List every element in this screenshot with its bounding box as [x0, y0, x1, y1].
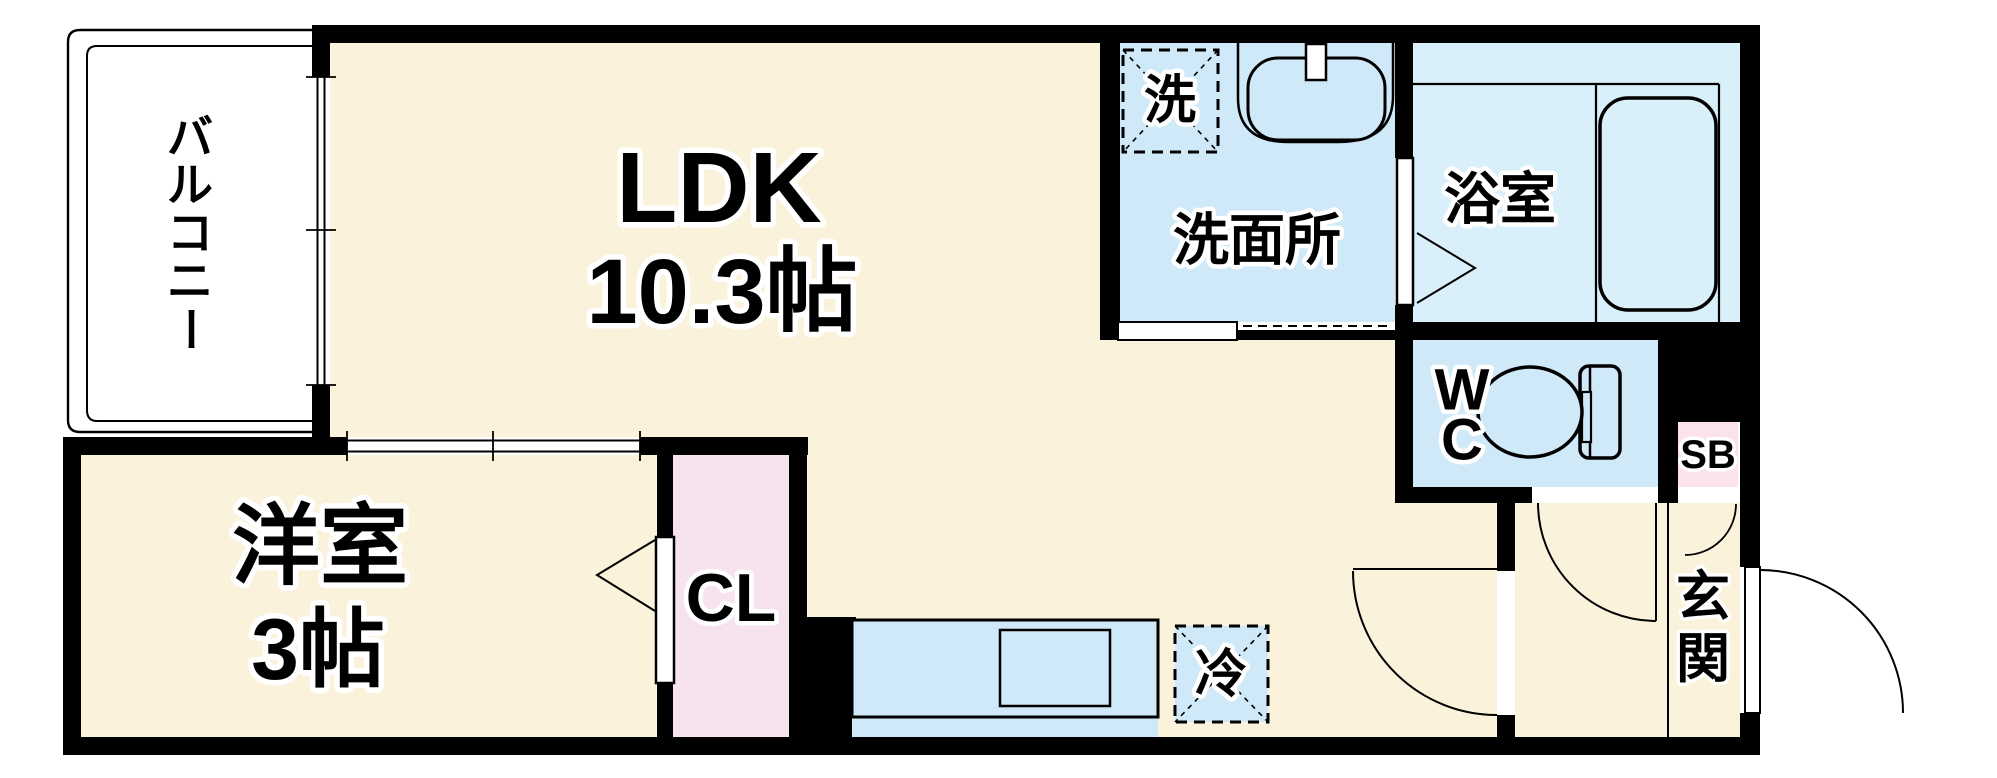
wall-wc-left	[1395, 340, 1413, 487]
entrance-label-2: 関	[1676, 629, 1730, 689]
balcony-label-1: バ	[167, 111, 213, 163]
washroom-label: 洗面所	[1173, 209, 1341, 272]
wall-closet-left-lower	[657, 683, 673, 737]
bathroom-label: 浴室	[1444, 168, 1556, 231]
ldk-label: LDK	[616, 132, 822, 244]
wall-right-upper	[1740, 43, 1760, 567]
floor-plan-drawing: LDK 10.3帖 洋室 3帖 CL 洗面所 洗 浴室 W C SB 玄 関 冷…	[0, 0, 1997, 778]
toilet-icon	[1478, 366, 1620, 458]
balcony-window-glass	[312, 77, 330, 385]
floor-plan-page: LDK 10.3帖 洋室 3帖 CL 洗面所 洗 浴室 W C SB 玄 関 冷…	[0, 0, 1997, 778]
balcony-label-4: ニ	[167, 255, 213, 307]
wall-closet-right	[789, 437, 807, 737]
wall-washroom-left	[1100, 25, 1120, 340]
wall-bath-bottom	[1395, 322, 1740, 340]
closet-door-leaf	[656, 537, 674, 683]
sliding-door-leaf	[1118, 322, 1237, 340]
wall-ldk-left-bottom	[312, 385, 330, 437]
refrigerator-label: 冷	[1195, 646, 1247, 704]
wall-bath-divider-upper	[1395, 25, 1413, 158]
washer-label: 洗	[1144, 72, 1196, 130]
wall-closet-left-upper	[657, 455, 673, 537]
wall-closet-top	[640, 437, 808, 455]
under-shoebox-opening	[1678, 487, 1738, 503]
closet-label: CL	[686, 560, 777, 636]
bath-door-leaf	[1397, 158, 1413, 305]
wc-label-c: C	[1441, 408, 1483, 473]
wall-western-top-left	[63, 437, 347, 455]
ldk-door-opening	[1497, 571, 1515, 715]
shoebox-label: SB	[1680, 433, 1736, 477]
entrance-label-1: 玄	[1676, 567, 1730, 627]
wall-bottom	[63, 737, 1760, 755]
front-door-arc	[1760, 570, 1903, 713]
wall-ldk-left-top	[312, 25, 330, 77]
wall-kitchen-stub	[807, 617, 856, 737]
wall-wc-right	[1658, 422, 1678, 503]
wc-door-opening	[1532, 487, 1658, 503]
front-door-leaf	[1745, 567, 1760, 713]
kitchen-counter	[852, 620, 1158, 717]
faucet-icon	[1306, 44, 1326, 80]
balcony-label-2: ル	[167, 159, 213, 211]
wall-western-left	[63, 437, 81, 755]
wall-hall-ldk-lower	[1497, 715, 1515, 737]
front-door	[1745, 567, 1903, 713]
toilet-bowl	[1478, 367, 1582, 457]
wall-block-above-shoebox	[1658, 340, 1740, 422]
ldk-area-label: 10.3帖	[586, 241, 857, 343]
kitchen-counter-icon	[852, 620, 1158, 737]
western-room-area-label: 3帖	[251, 602, 385, 698]
western-room-label: 洋室	[232, 497, 408, 596]
wall-hall-ldk-upper	[1497, 503, 1515, 571]
balcony-label-5: ー	[164, 306, 216, 352]
wall-top	[312, 25, 1760, 43]
wall-washroom-bottom	[1237, 330, 1395, 340]
balcony-label-3: コ	[167, 207, 213, 259]
kitchen-lower-strip	[852, 717, 1158, 737]
wall-under-wc	[1395, 487, 1532, 503]
